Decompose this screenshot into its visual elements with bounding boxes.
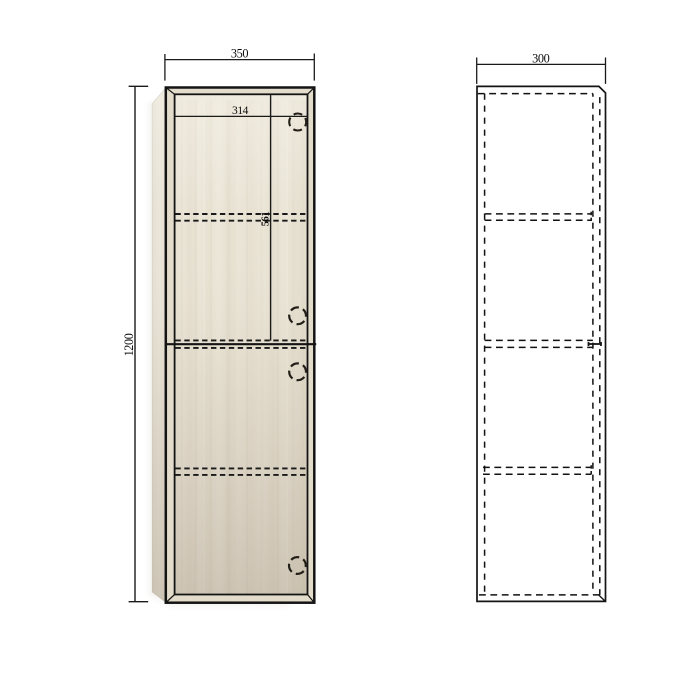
- svg-text:300: 300: [532, 51, 549, 65]
- svg-text:561: 561: [260, 212, 271, 227]
- svg-text:1200: 1200: [122, 333, 136, 356]
- svg-text:350: 350: [231, 47, 248, 61]
- svg-text:314: 314: [232, 105, 249, 117]
